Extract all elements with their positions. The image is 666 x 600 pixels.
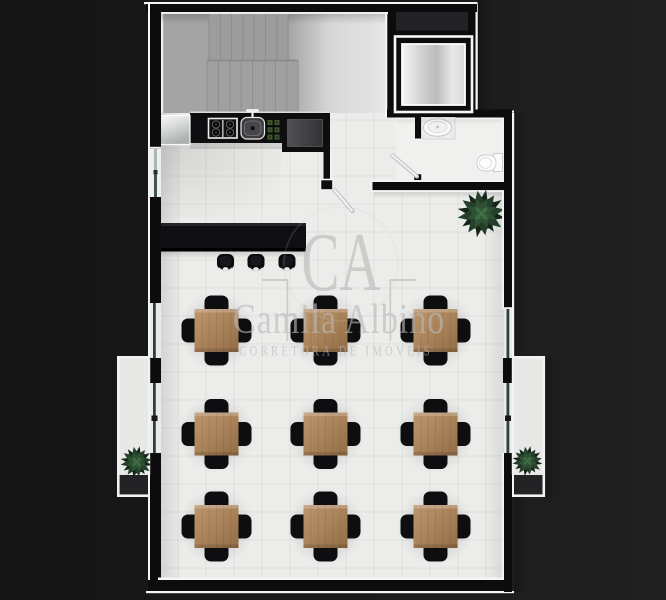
svg-text:CORRETORA DE IMÓVEIS: CORRETORA DE IMÓVEIS — [239, 342, 433, 359]
svg-text:Camila Albino: Camila Albino — [233, 297, 445, 343]
svg-text:CA: CA — [301, 215, 380, 309]
